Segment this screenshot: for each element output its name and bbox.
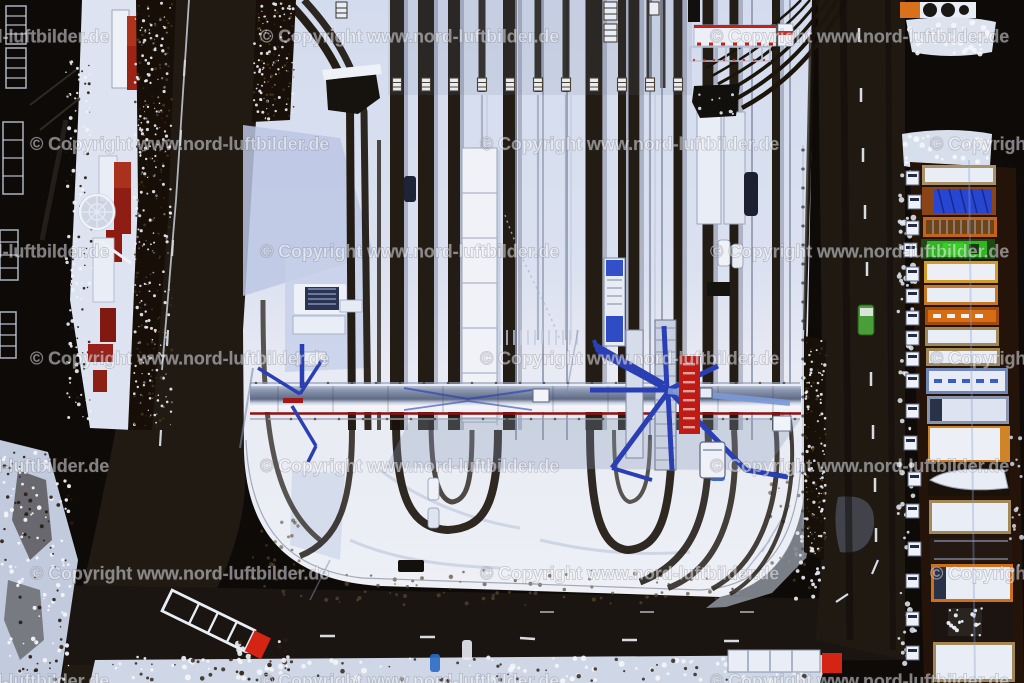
svg-text:© Copyright www.nord-luftbilde: © Copyright www.nord-luftbilder.de [0, 241, 109, 261]
svg-text:© Copyright www.nord-luftbilde: © Copyright www.nord-luftbilder.de [710, 27, 1009, 47]
svg-text:© Copyright www.nord-luftbilde: © Copyright www.nord-luftbilder.de [30, 134, 329, 154]
svg-text:© Copyright www.nord-luftbilde: © Copyright www.nord-luftbilder.de [710, 671, 1009, 683]
svg-text:© Copyright www.nord-luftbilde: © Copyright www.nord-luftbilder.de [30, 564, 329, 584]
svg-text:© Copyright www.nord-luftbilde: © Copyright www.nord-luftbilder.de [710, 241, 1009, 261]
svg-text:© Copyright www.nord-luftbilde: © Copyright www.nord-luftbilder.de [260, 241, 559, 261]
svg-text:© Copyright www.nord-luftbilde: © Copyright www.nord-luftbilder.de [30, 349, 329, 369]
svg-text:© Copyright www.nord-luftbilde: © Copyright www.nord-luftbilder.de [480, 349, 779, 369]
svg-text:© Copyright www.nord-luftbilde: © Copyright www.nord-luftbilder.de [0, 456, 109, 476]
svg-text:© Copyright www.nord-luftbilde: © Copyright www.nord-luftbilder.de [930, 349, 1024, 369]
svg-text:© Copyright www.nord-luftbilde: © Copyright www.nord-luftbilder.de [0, 671, 109, 683]
svg-text:© Copyright www.nord-luftbilde: © Copyright www.nord-luftbilder.de [930, 134, 1024, 154]
svg-text:© Copyright www.nord-luftbilde: © Copyright www.nord-luftbilder.de [480, 134, 779, 154]
svg-text:© Copyright www.nord-luftbilde: © Copyright www.nord-luftbilder.de [0, 27, 109, 47]
svg-text:© Copyright www.nord-luftbilde: © Copyright www.nord-luftbilder.de [260, 27, 559, 47]
svg-text:© Copyright www.nord-luftbilde: © Copyright www.nord-luftbilder.de [710, 456, 1009, 476]
svg-text:© Copyright www.nord-luftbilde: © Copyright www.nord-luftbilder.de [930, 564, 1024, 584]
svg-text:© Copyright www.nord-luftbilde: © Copyright www.nord-luftbilder.de [260, 671, 559, 683]
svg-text:© Copyright www.nord-luftbilde: © Copyright www.nord-luftbilder.de [260, 456, 559, 476]
svg-text:© Copyright www.nord-luftbilde: © Copyright www.nord-luftbilder.de [480, 564, 779, 584]
